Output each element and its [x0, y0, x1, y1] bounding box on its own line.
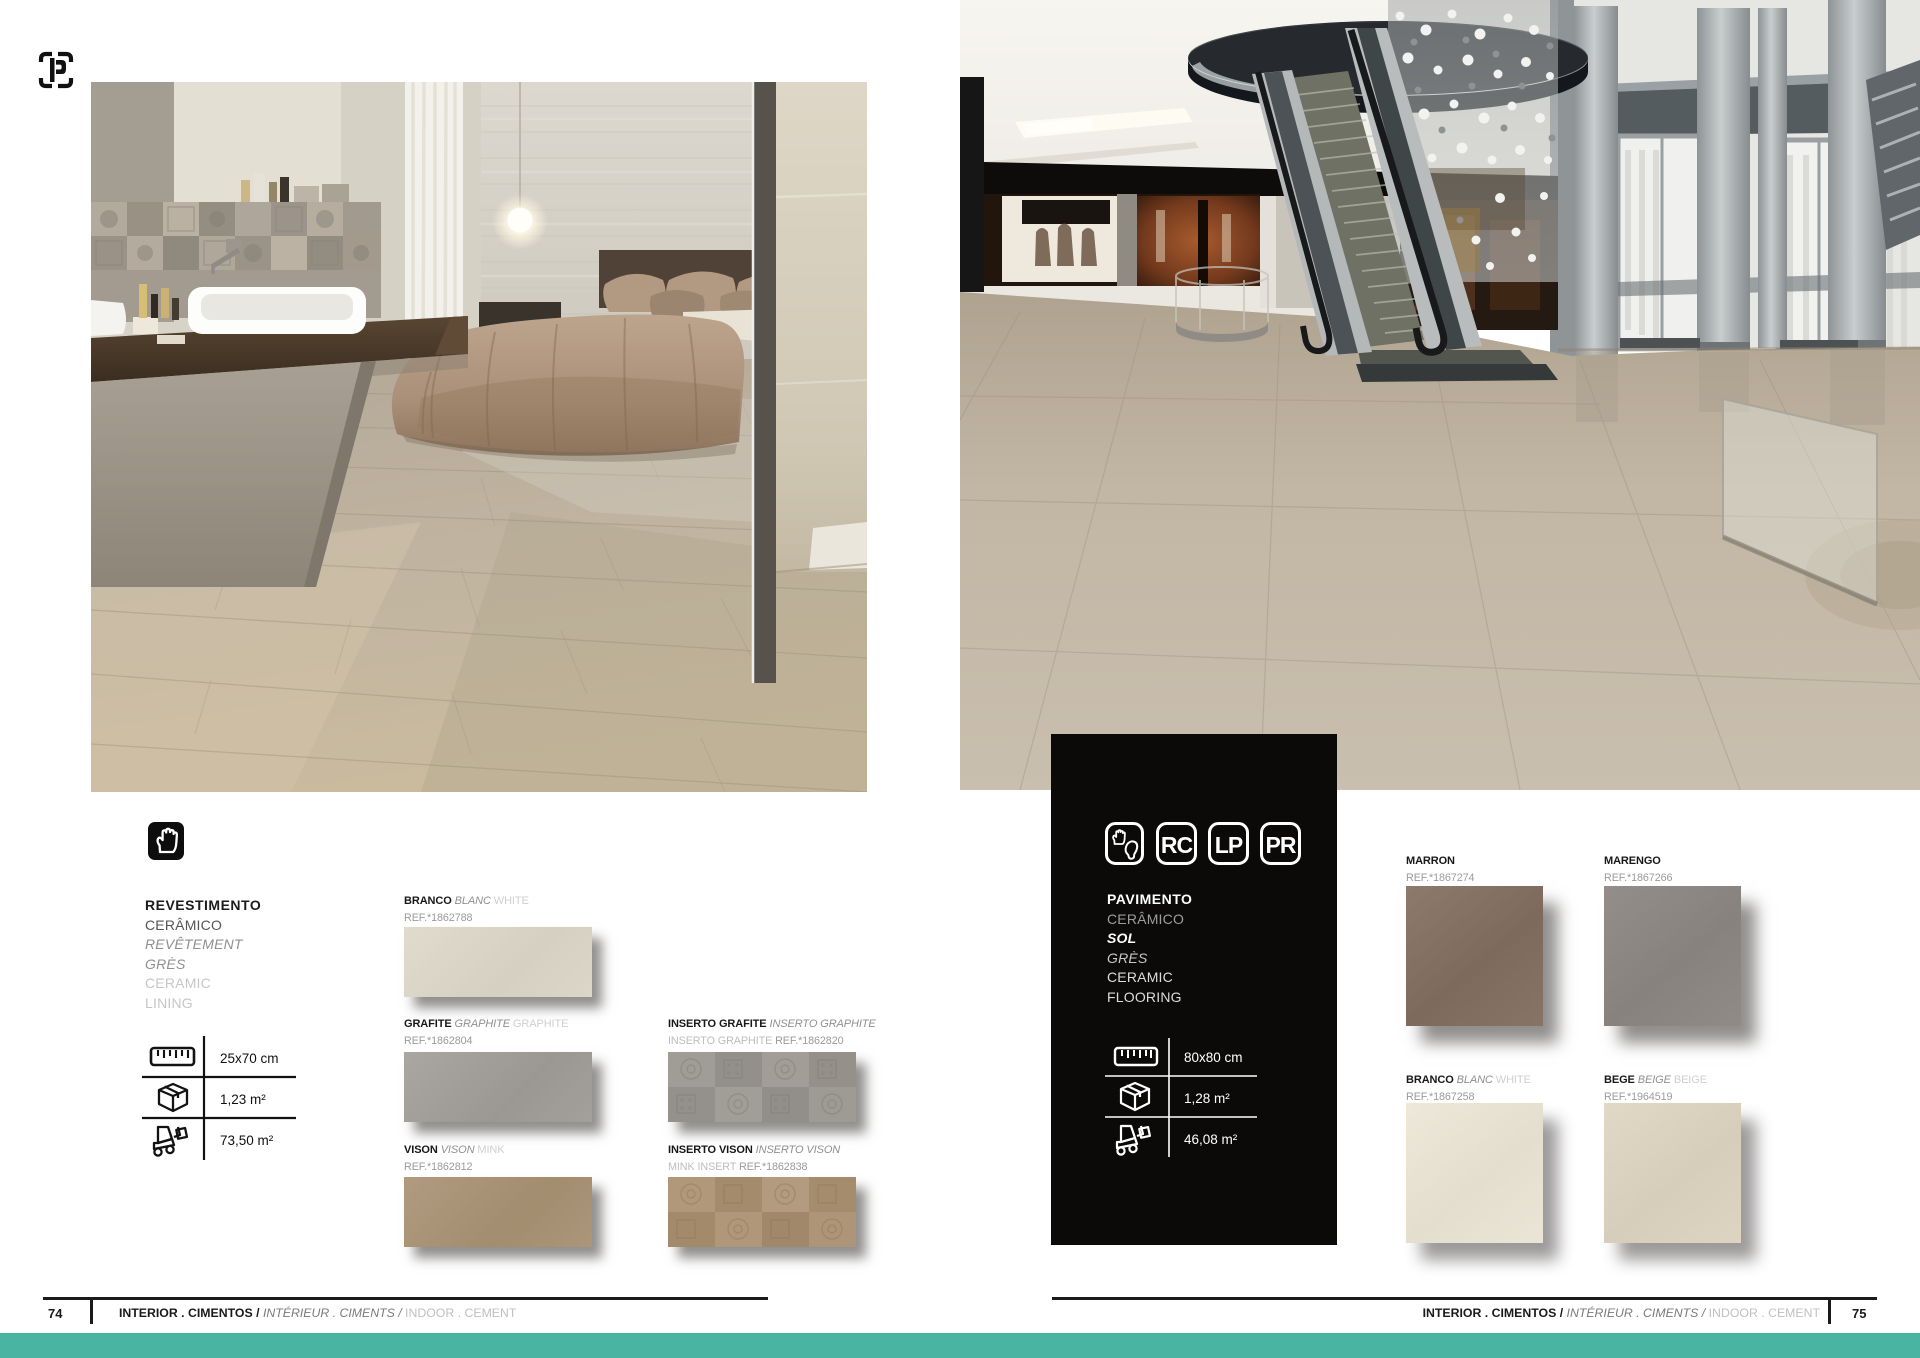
svg-text:1,28 m²: 1,28 m²: [1184, 1091, 1230, 1106]
svg-text:PR: PR: [1266, 832, 1297, 858]
svg-text:73,50 m²: 73,50 m²: [220, 1133, 274, 1148]
svg-text:LP: LP: [1215, 832, 1243, 858]
svg-text:25x70 cm: 25x70 cm: [220, 1051, 279, 1066]
svg-text:RC: RC: [1161, 832, 1193, 858]
svg-text:46,08 m²: 46,08 m²: [1184, 1132, 1238, 1147]
svg-text:1,23 m²: 1,23 m²: [220, 1092, 266, 1107]
svg-text:80x80 cm: 80x80 cm: [1184, 1050, 1243, 1065]
